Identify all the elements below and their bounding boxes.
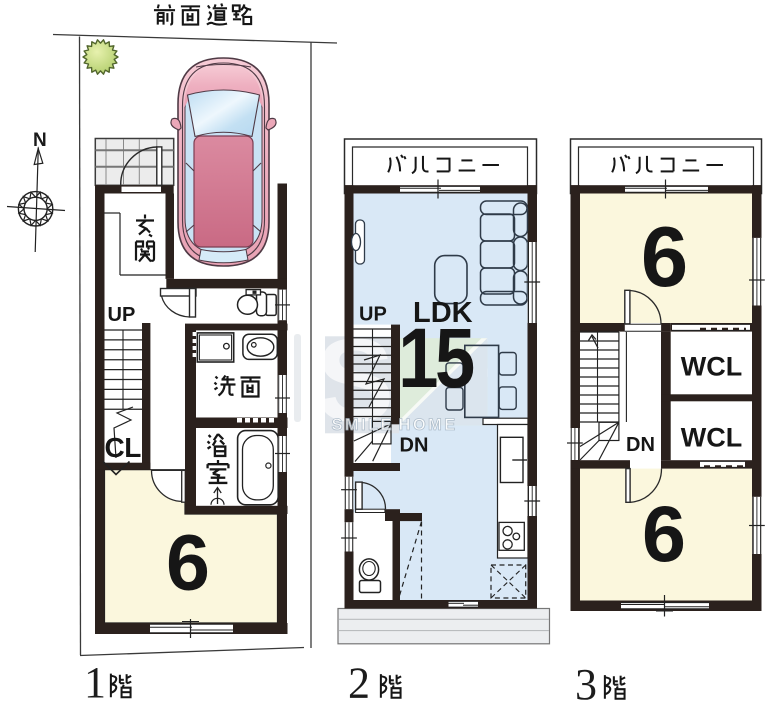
svg-text:6: 6 (642, 489, 686, 578)
svg-text:DN: DN (400, 435, 429, 457)
svg-text:UP: UP (108, 304, 136, 326)
svg-text:6: 6 (166, 518, 210, 607)
svg-text:1: 1 (84, 658, 106, 707)
svg-text:WCL: WCL (681, 352, 742, 382)
svg-text:2: 2 (348, 659, 370, 708)
svg-text:UP: UP (359, 304, 387, 326)
svg-text:3: 3 (575, 660, 597, 709)
svg-text:CL: CL (105, 432, 142, 463)
svg-text:N: N (33, 130, 47, 151)
svg-text:SMILE: SMILE (332, 416, 394, 434)
svg-text:6: 6 (641, 210, 688, 305)
svg-text:WCL: WCL (681, 423, 742, 453)
svg-text:HOME: HOME (399, 416, 458, 434)
svg-text:DN: DN (626, 434, 655, 456)
svg-text:15: 15 (398, 311, 473, 405)
